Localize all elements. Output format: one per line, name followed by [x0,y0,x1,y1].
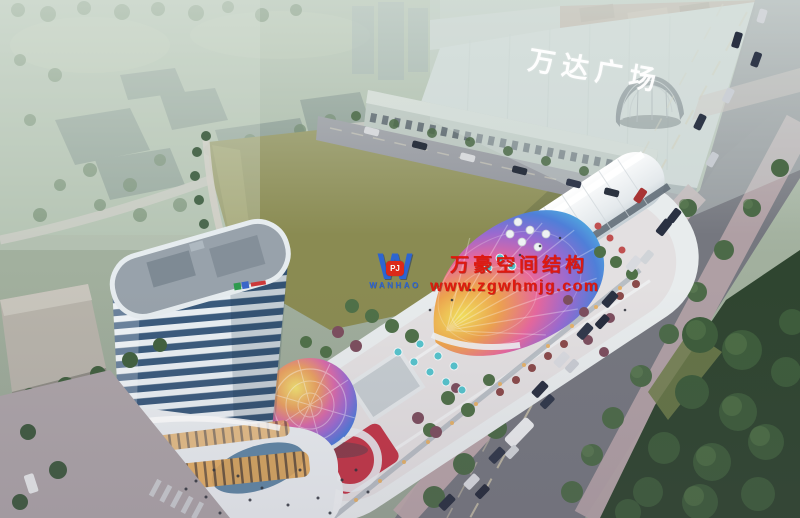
watermark-website: www.zgwhmjg.com [430,278,599,296]
wanhao-logo-word: WANHAO [366,281,424,290]
watermark-text: 万豪空间结构 www.zgwhmjg.com [430,250,599,296]
aerial-rendering: 万达广场 W PJ WANHAO 万豪空间结构 www.zgwhmjg.com [0,0,800,518]
wanhao-logo: W PJ WANHAO [366,250,424,290]
watermark-company: 万豪空间结构 [450,250,599,277]
watermark: W PJ WANHAO 万豪空间结构 www.zgwhmjg.com [366,250,599,296]
wanhao-logo-badge: PJ [386,261,404,276]
